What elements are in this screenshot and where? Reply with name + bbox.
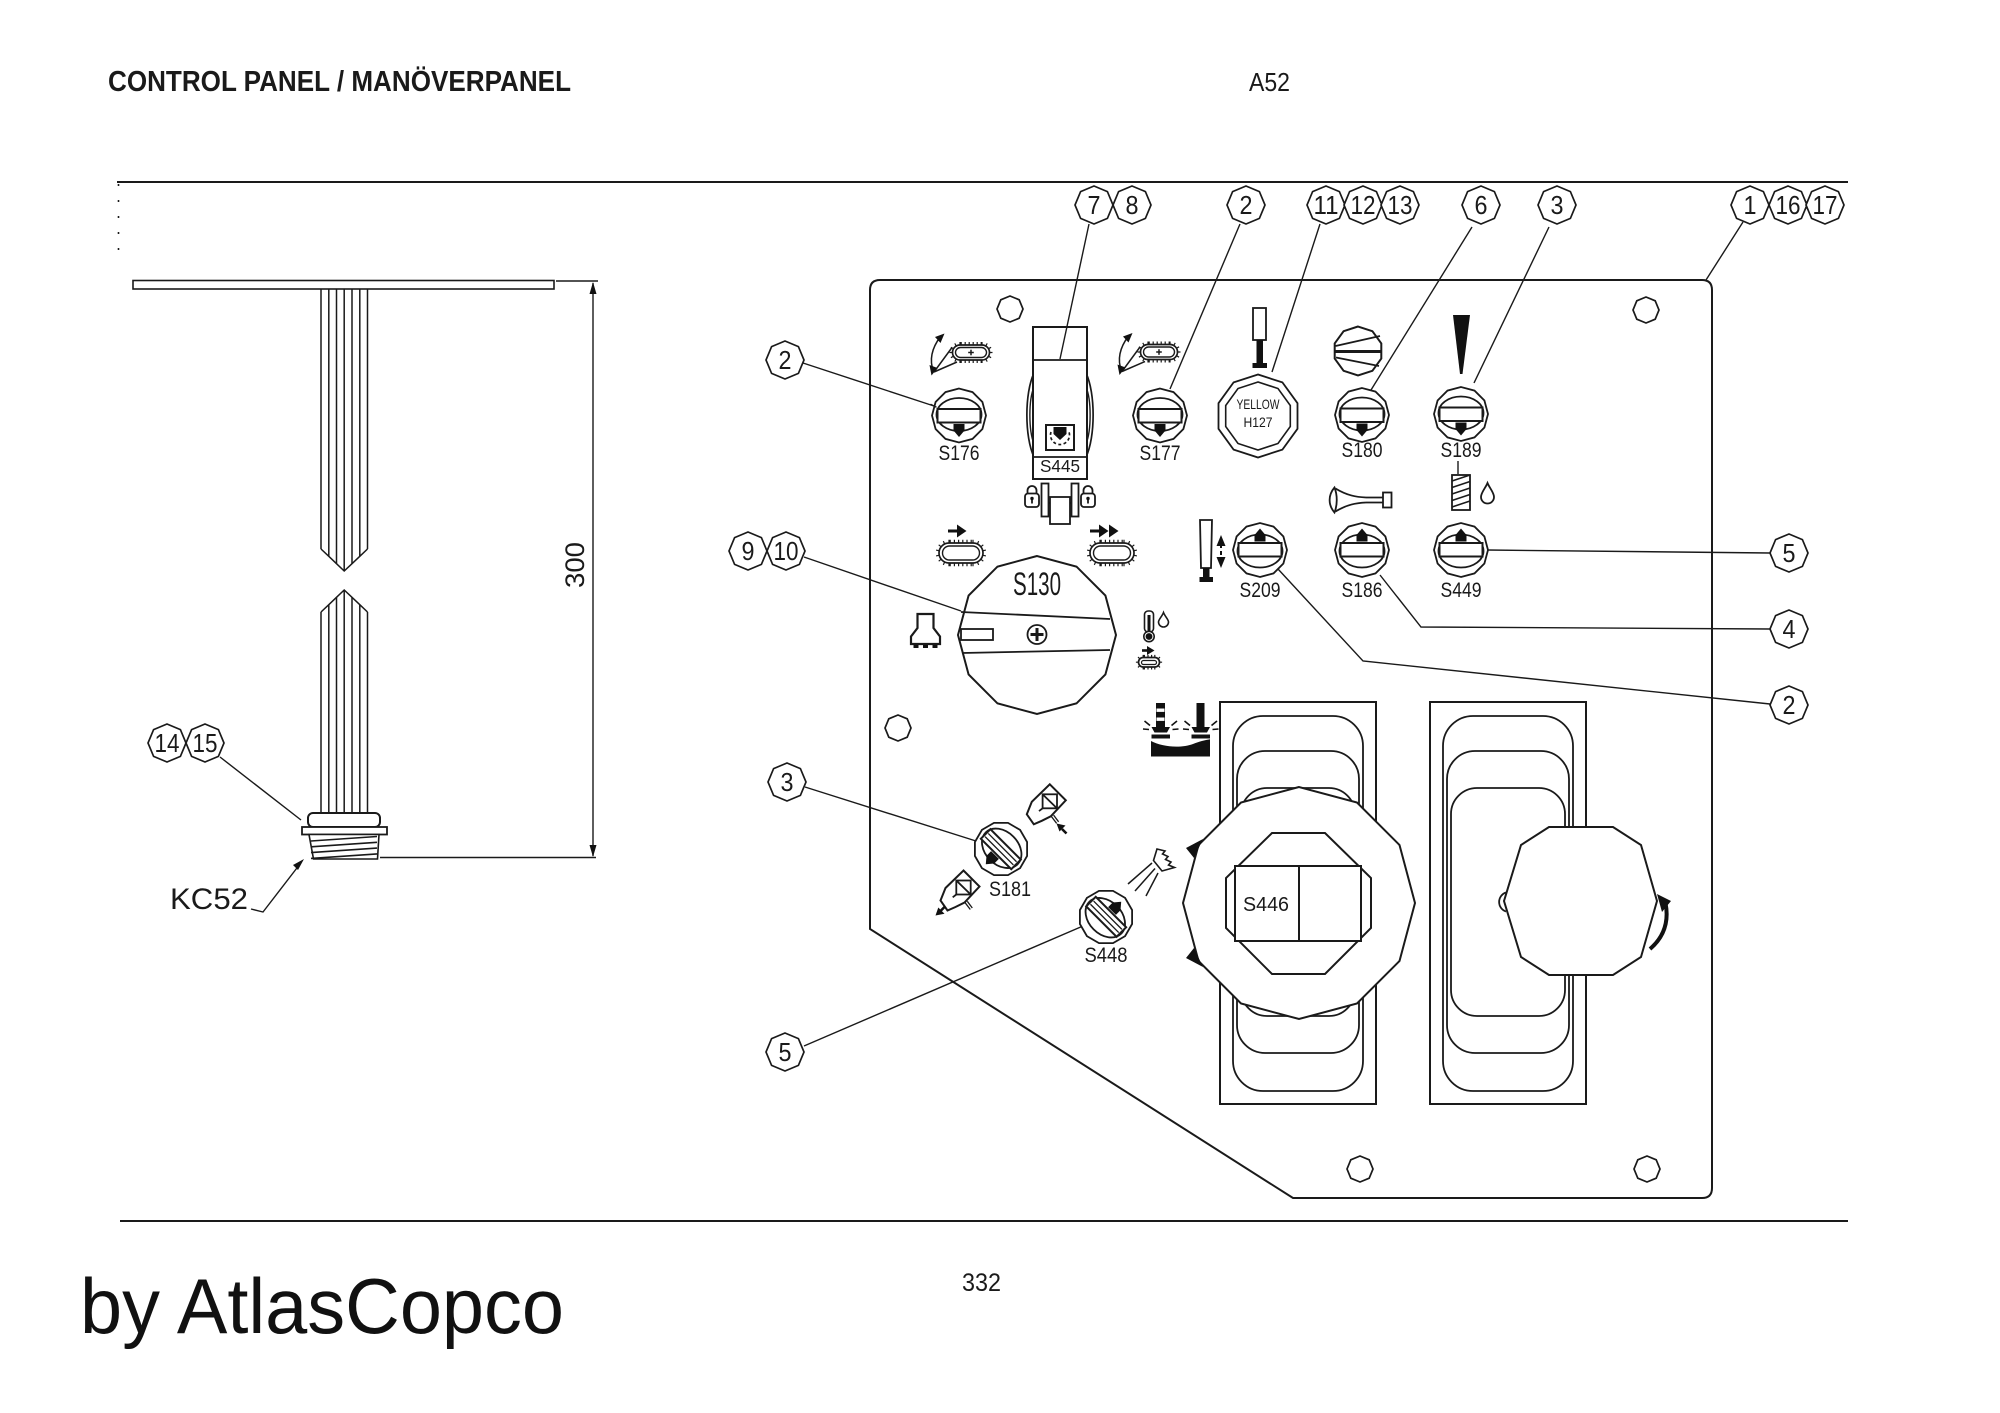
svg-text:S189: S189 [1441,439,1482,462]
svg-text:5: 5 [779,1037,792,1067]
svg-text:12: 12 [1351,190,1376,220]
svg-text:6: 6 [1475,190,1488,220]
svg-text:9: 9 [742,536,755,566]
svg-text:KC52: KC52 [170,883,248,916]
svg-text:S448: S448 [1085,944,1128,967]
svg-text:by AtlasCopco: by AtlasCopco [80,1262,564,1350]
svg-text:8: 8 [1126,190,1139,220]
svg-text:10: 10 [774,536,799,566]
svg-text:S181: S181 [989,878,1031,901]
svg-text:CONTROL PANEL / MANÖVERPANEL: CONTROL PANEL / MANÖVERPANEL [108,66,571,98]
svg-text:2: 2 [779,345,792,375]
svg-text:16: 16 [1776,190,1801,220]
svg-text:1: 1 [1744,190,1757,220]
svg-text:S177: S177 [1140,442,1181,465]
svg-text:17: 17 [1813,190,1838,220]
svg-text:300: 300 [560,542,590,588]
svg-text:A52: A52 [1249,67,1290,97]
svg-text:S445: S445 [1040,456,1080,476]
svg-text:S446: S446 [1243,894,1289,916]
svg-text:13: 13 [1388,190,1413,220]
svg-text:S130: S130 [1013,566,1061,602]
svg-text:14: 14 [155,728,180,758]
svg-text:4: 4 [1783,614,1796,644]
svg-text:3: 3 [781,767,794,797]
svg-text:7: 7 [1088,190,1101,220]
svg-text:5: 5 [1783,538,1796,568]
svg-text:S449: S449 [1441,579,1482,602]
svg-text:S176: S176 [939,442,980,465]
svg-text:YELLOW: YELLOW [1237,396,1281,412]
svg-text:15: 15 [193,728,218,758]
svg-text:2: 2 [1783,690,1796,720]
svg-text:2: 2 [1240,190,1253,220]
svg-text:S180: S180 [1342,439,1383,462]
svg-text:S186: S186 [1342,579,1383,602]
svg-text:S209: S209 [1240,579,1281,602]
svg-text:3: 3 [1551,190,1564,220]
svg-text:H127: H127 [1244,414,1273,430]
svg-text:11: 11 [1314,190,1339,220]
svg-text:332: 332 [962,1269,1001,1297]
